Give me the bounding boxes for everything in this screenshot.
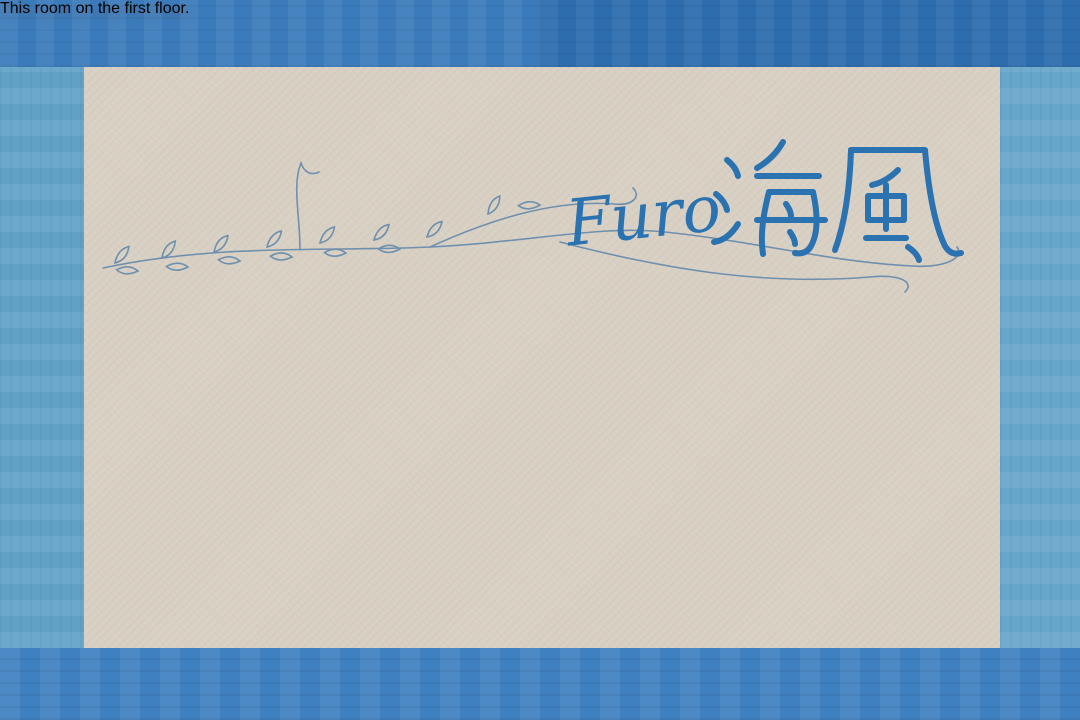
vine-decoration [103,163,959,292]
scene-svg: Furo [0,0,1080,720]
room-title: Furo [562,142,961,262]
vine-leaves [111,195,540,278]
title-romaji: Furo [562,172,725,262]
postcard-page: Furo [0,0,1080,720]
title-kanji-strokes [714,142,961,260]
